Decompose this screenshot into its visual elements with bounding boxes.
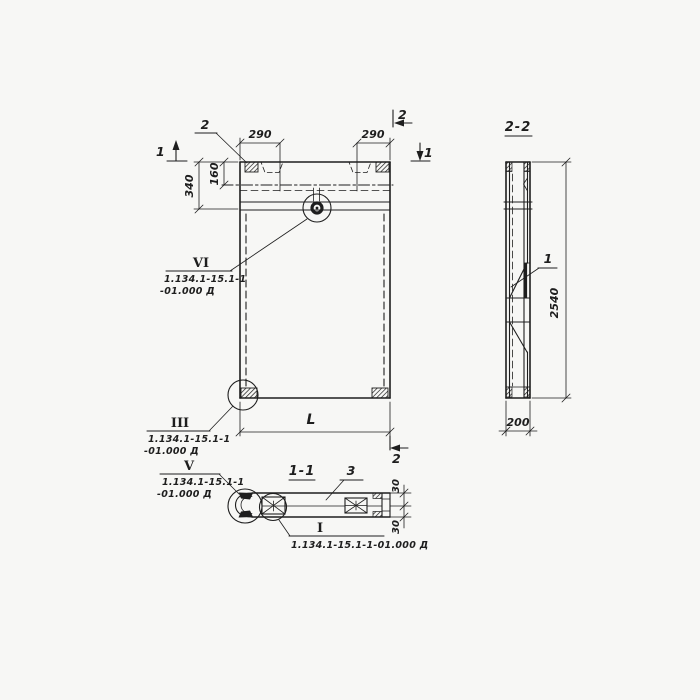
section-mark-2-bottom-label: 2 xyxy=(392,451,401,466)
section-1-1-title-text: 1-1 xyxy=(289,464,316,479)
technical-drawing: 290 290 340 160 L xyxy=(0,0,700,700)
section-1-1-title: 1-1 xyxy=(289,464,316,480)
section-mark-1-right: 1 xyxy=(411,143,433,161)
plan-item-label-2: 2 xyxy=(195,117,247,163)
dim-length-label: L xyxy=(307,412,316,428)
callout-iii-mark: III xyxy=(171,416,189,431)
callout-i-ref: 1.134.1-15.1-1-01.000 Д xyxy=(291,540,428,551)
section-2-2-title: 2-2 xyxy=(505,120,532,136)
section-mark-1-left: 1 xyxy=(156,140,187,161)
section-2-2-view: 2-2 xyxy=(499,120,571,436)
section-1-1-bar xyxy=(228,489,390,523)
drawing-sheet: 290 290 340 160 L xyxy=(0,0,700,700)
callout-v: V 1.134.1-15.1-1 -01.000 Д xyxy=(157,459,244,500)
item-3-text: 3 xyxy=(347,463,356,478)
section-mark-1-right-label: 1 xyxy=(424,145,433,160)
callout-v-mark: V xyxy=(183,459,195,474)
callout-iii: III 1.134.1-15.1-1 -01.000 Д xyxy=(144,406,233,457)
dim-30-top-label: 30 xyxy=(391,479,402,493)
bar-recess-1 xyxy=(262,497,285,514)
callout-iii-ref-line2: -01.000 Д xyxy=(144,446,199,457)
section-1-1-view: 1-1 xyxy=(228,463,428,551)
section-1-1-item-3: 3 xyxy=(326,463,363,500)
callout-v-ref-line2: -01.000 Д xyxy=(157,489,212,500)
section-2-2-title-text: 2-2 xyxy=(505,120,532,135)
dim-160-label: 160 xyxy=(208,162,221,185)
section-mark-2-top-label: 2 xyxy=(398,107,407,122)
dim-290-right-label: 290 xyxy=(362,128,385,141)
bar-recess-2 xyxy=(345,498,367,513)
dim-340-label: 340 xyxy=(183,174,196,197)
callout-vi: VI 1.134.1-15.1-1 -01.000 Д xyxy=(160,219,307,297)
dim-200-label: 200 xyxy=(507,416,530,429)
plan-bottom-anchors xyxy=(228,380,388,410)
callout-iii-ref-line1: 1.134.1-15.1-1 xyxy=(148,434,230,445)
callout-i-mark: I xyxy=(317,521,323,536)
section-mark-2-top: 2 xyxy=(393,107,412,127)
section-mark-2-bottom: 2 xyxy=(390,436,408,466)
plan-top-anchors xyxy=(245,143,389,191)
section-2-2-body xyxy=(504,162,532,398)
callout-i: I 1.134.1-15.1-1-01.000 Д xyxy=(279,520,428,551)
dim-2540-label: 2540 xyxy=(548,287,561,318)
callout-vi-mark: VI xyxy=(192,256,209,271)
dim-290-left-label: 290 xyxy=(249,128,272,141)
callout-v-ref-line1: 1.134.1-15.1-1 xyxy=(162,477,244,488)
section-1-1-dimensions: 30 30 xyxy=(390,479,411,534)
item-1-text: 1 xyxy=(544,251,553,266)
callout-vi-ref-line2: -01.000 Д xyxy=(160,286,215,297)
callout-vi-ref-line1: 1.134.1-15.1-1 xyxy=(164,274,246,285)
section-mark-1-left-label: 1 xyxy=(156,144,165,159)
plan-item-2-text: 2 xyxy=(201,117,210,132)
plan-outline xyxy=(240,162,390,398)
lifting-loop-detail xyxy=(303,188,331,222)
dim-30-bottom-label: 30 xyxy=(391,520,402,534)
